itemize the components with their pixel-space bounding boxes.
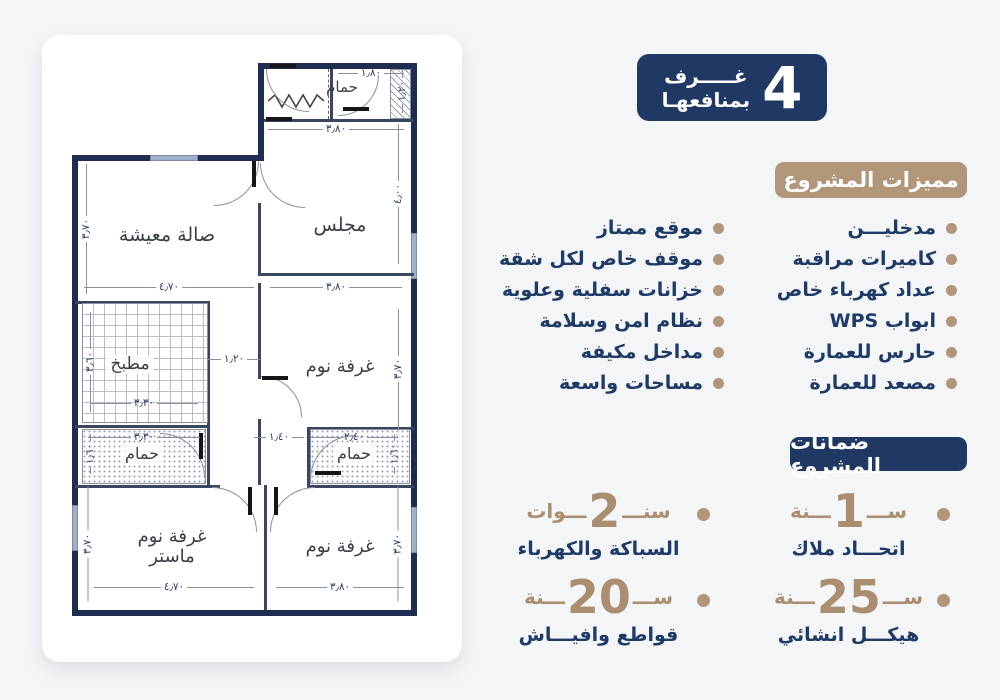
room-label-majlis: مجلس: [314, 215, 367, 236]
feature-item: مساحات واسعة: [519, 371, 724, 395]
dimension: ٣٫٣٠: [88, 431, 200, 443]
rooms-badge-text: غـــــرف بمنافعهـا: [662, 64, 751, 112]
interior-wall: [264, 485, 267, 610]
guarantee-label: اتحـــاد ملاك: [792, 538, 906, 560]
feature-item: مداخل مكيفة: [519, 340, 724, 364]
bullet-icon: [946, 347, 957, 358]
bullet-icon: [946, 223, 957, 234]
door-arc: [260, 163, 305, 208]
interior-wall: [75, 425, 210, 428]
bullet-icon: [946, 285, 957, 296]
guarantees-title: ضمانات المشروع: [790, 437, 967, 471]
dimension: ٣٫٨٠: [268, 123, 404, 135]
feature-item: عداد كهرباء خاص: [770, 278, 957, 302]
outer-wall: [258, 63, 264, 161]
dimension: ١٫٦٠: [388, 434, 400, 474]
bullet-icon: [937, 508, 950, 521]
room-label-line: ماستر: [138, 547, 207, 567]
door-leaf: [274, 487, 278, 515]
feature-item: موقف خاص لكل شقة: [519, 247, 724, 271]
door-leaf: [343, 107, 369, 111]
poster: حمام مجلس صالة معيشة مطبخ غرفة نوم حمام …: [0, 0, 1000, 700]
door-leaf: [262, 376, 288, 380]
room-label-bed-bottom: غرفة نوم: [306, 537, 375, 557]
features-column-right: مدخليـــن كاميرات مراقبة عداد كهرباء خاص…: [770, 216, 957, 395]
dimension: ٣٫٦٠: [84, 312, 96, 412]
dimension: ٤٫٧٠: [94, 581, 254, 593]
guarantee-item: ســـ 25 ـــنة هيكـــل انشائي: [772, 574, 950, 646]
bullet-icon: [946, 316, 957, 327]
dimension: ١٫٢٠: [208, 353, 260, 365]
guarantee-item: سنـــ 2 ـــوات السباكة والكهرباء: [512, 488, 710, 560]
bullet-icon: [713, 223, 724, 234]
bullet-icon: [946, 378, 957, 389]
room-label-bath-right: حمام: [333, 445, 375, 463]
guarantee-number: 1: [833, 488, 865, 534]
guarantee-number: 25: [817, 574, 881, 620]
room-label-bed-top: غرفة نوم: [306, 357, 375, 377]
floorplan: حمام مجلس صالة معيشة مطبخ غرفة نوم حمام …: [42, 35, 462, 662]
feature-item: نظام امن وسلامة: [519, 309, 724, 333]
feature-item: مصعد للعمارة: [770, 371, 957, 395]
rooms-count: 4: [762, 59, 802, 117]
window: [150, 155, 198, 161]
dimension: ٤٫٠٠: [392, 124, 404, 264]
rooms-badge: 4 غـــــرف بمنافعهـا: [637, 54, 827, 121]
dimension: ٣٫٧٠: [392, 309, 404, 429]
dimension: ١٫٢٠: [396, 69, 408, 113]
feature-item: كاميرات مراقبة: [770, 247, 957, 271]
bullet-icon: [713, 285, 724, 296]
room-label-line: غرفة نوم: [138, 527, 207, 547]
dimension: ١٫٨٠: [338, 67, 404, 79]
dimension: ٣٫٨٠: [270, 281, 402, 293]
dimension: ٤٫٧٠: [84, 281, 254, 293]
room-label-bath-left: حمام: [121, 445, 163, 463]
door-arc: [261, 376, 302, 417]
guarantee-item: ســـ 1 ـــنة اتحـــاد ملاك: [772, 488, 950, 560]
bullet-icon: [946, 254, 957, 265]
interior-wall: [258, 419, 261, 485]
feature-item: ابواب WPS: [770, 309, 957, 333]
rooms-badge-line1: غـــــرف: [662, 64, 751, 88]
features-column-left: موقع ممتاز موقف خاص لكل شقة خزانات سفلية…: [519, 216, 724, 395]
guarantee-label: السباكة والكهرباء: [518, 538, 680, 560]
dimension: ٣٫٨٠: [276, 581, 404, 593]
dimension: ١٫٦٠: [84, 434, 96, 474]
room-label-bed-master: غرفة نوم ماستر: [138, 527, 207, 567]
interior-wall: [258, 203, 261, 276]
guarantee-label: قواطع وافيـــاش: [519, 624, 679, 646]
guarantee-number: 2: [588, 488, 620, 534]
floorplan-card: حمام مجلس صالة معيشة مطبخ غرفة نوم حمام …: [42, 35, 462, 662]
feature-item: موقع ممتاز: [519, 216, 724, 240]
dimension: ٣٫٣٠: [90, 397, 198, 409]
room-label-kitchen: مطبخ: [106, 355, 153, 374]
dimension: ١٫٤٠: [254, 431, 304, 443]
door-leaf: [266, 117, 292, 121]
interior-wall: [75, 485, 220, 488]
bullet-icon: [713, 254, 724, 265]
door-leaf: [252, 161, 256, 187]
bullet-icon: [937, 594, 950, 607]
feature-item: خزانات سفلية وعلوية: [519, 278, 724, 302]
bullet-icon: [697, 508, 710, 521]
feature-item: مدخليـــن: [770, 216, 957, 240]
rooms-badge-line2: بمنافعهـا: [662, 88, 751, 112]
bullet-icon: [713, 347, 724, 358]
room-label-bath-top: حمام: [326, 79, 358, 96]
dimension: ٣٫٧٠: [392, 487, 404, 602]
door-leaf: [315, 471, 341, 475]
window: [411, 507, 417, 553]
feature-item: حارس للعمارة: [770, 340, 957, 364]
features-title: مميزات المشروع: [775, 162, 967, 198]
interior-wall: [261, 273, 414, 276]
bullet-icon: [713, 378, 724, 389]
guarantee-item: ســـ 20 ـــنة قواطع وافيـــاش: [512, 574, 710, 646]
bullet-icon: [713, 316, 724, 327]
guarantee-number: 20: [567, 574, 631, 620]
bullet-icon: [697, 594, 710, 607]
door-leaf: [270, 64, 296, 68]
dimension: ٢٫٤٠: [310, 431, 398, 443]
dimension: ٣٫٧٠: [80, 164, 92, 294]
dimension: ٣٫٧٠: [82, 487, 94, 602]
window: [72, 505, 78, 551]
guarantee-label: هيكـــل انشائي: [778, 624, 920, 646]
door-leaf: [248, 487, 252, 515]
room-label-living: صالة معيشة: [119, 225, 215, 246]
outer-wall: [72, 610, 417, 616]
